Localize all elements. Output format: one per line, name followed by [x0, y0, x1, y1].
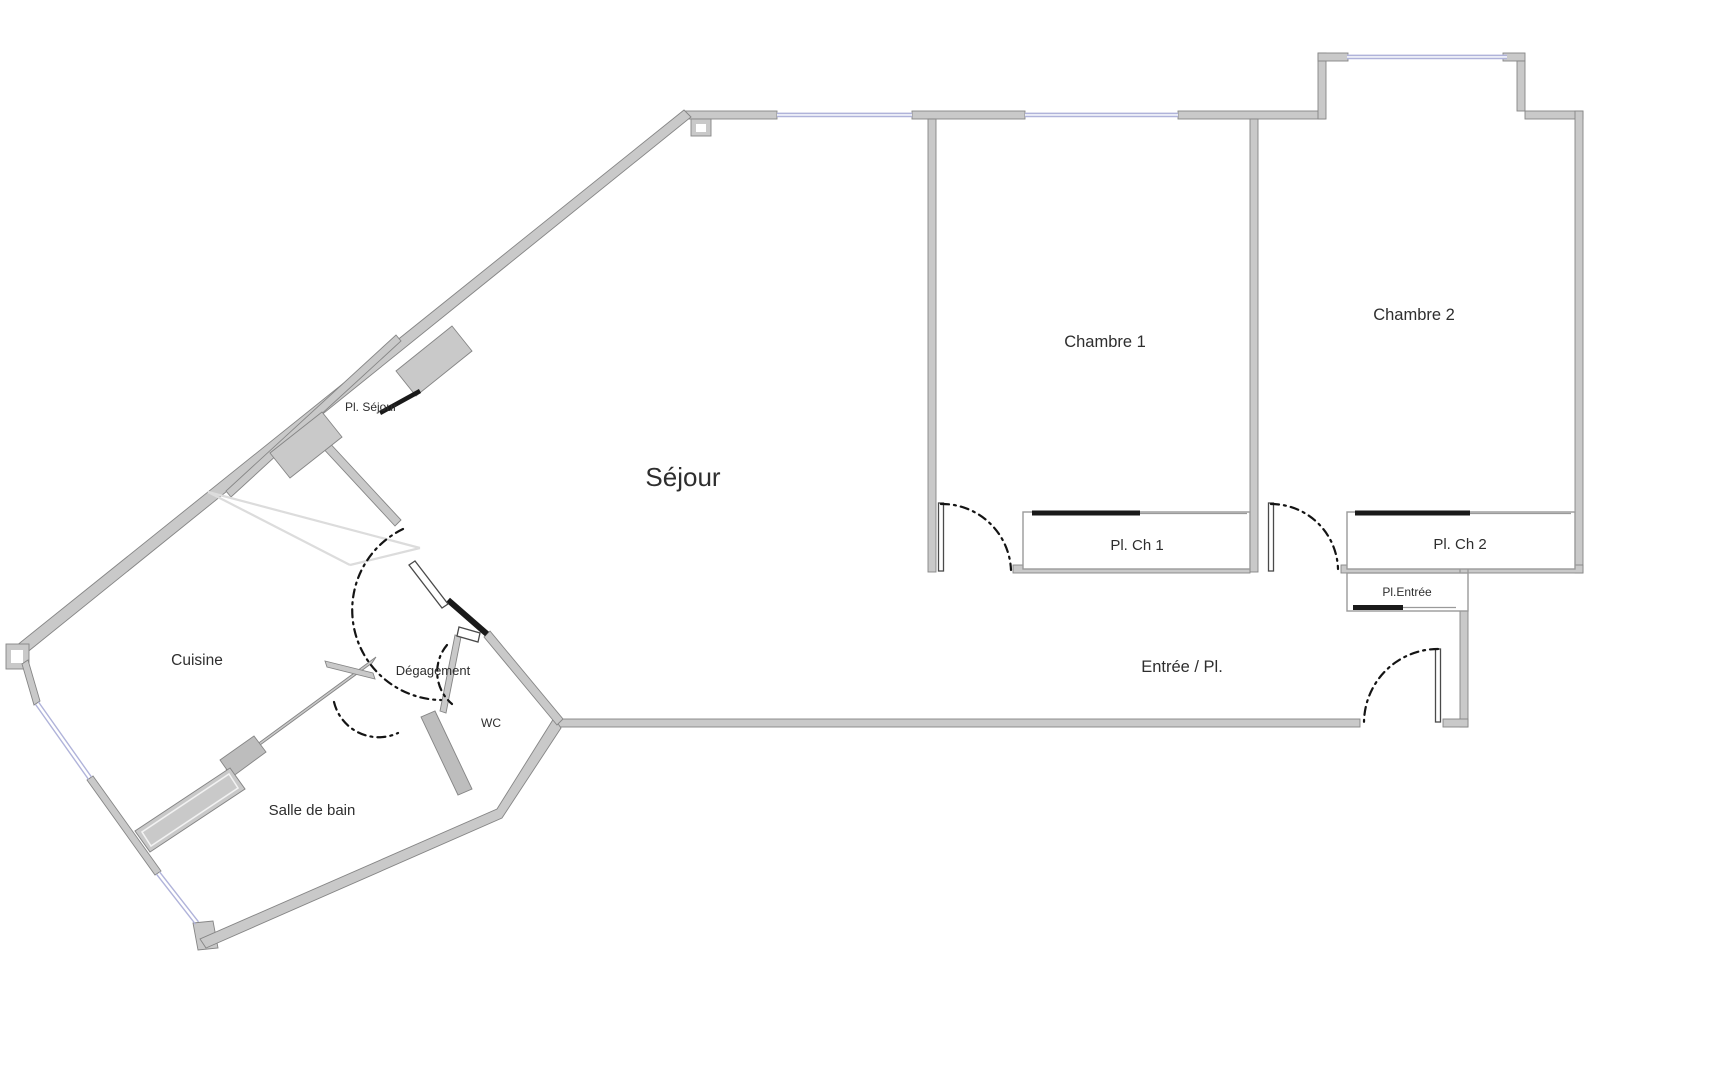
notch-core [696, 124, 706, 132]
wall-right-outer [1575, 111, 1583, 573]
window-cuisine-line [36, 704, 89, 779]
wall-block-sdb-wc [421, 711, 472, 795]
room-label-wc: WC [481, 716, 501, 730]
hatch-line [350, 548, 420, 565]
window-sdb-line [160, 872, 199, 922]
wall-bottom-right-piece [1443, 719, 1468, 727]
door-arc-sdb [334, 702, 398, 737]
wall-sejour-chambre1 [928, 119, 936, 572]
room-label-chambre1: Chambre 1 [1064, 333, 1146, 351]
bathtub [135, 768, 245, 852]
door-arc-chambre1 [941, 504, 1011, 570]
room-label-chambre2: Chambre 2 [1373, 306, 1455, 324]
wall-top-right [1525, 111, 1583, 119]
floor-plan-page: Séjour Chambre 1 Chambre 2 Pl. Ch 1 Pl. … [0, 0, 1712, 1080]
wall-sw-piece1 [22, 660, 40, 705]
hatch-line [208, 492, 420, 548]
wall-bump-left [1318, 53, 1326, 119]
hatch-line [208, 492, 350, 565]
room-label-sejour: Séjour [645, 462, 720, 492]
room-label-cuisine: Cuisine [171, 652, 223, 669]
wall-top-ch1-right [1178, 111, 1325, 119]
fixtures [135, 768, 245, 852]
window-fills [777, 55, 1507, 117]
door-arc-chambre2 [1271, 504, 1338, 569]
floor-plan: Séjour Chambre 1 Chambre 2 Pl. Ch 1 Pl. … [0, 0, 1712, 1080]
room-label-entree: Entrée / Pl. [1141, 658, 1223, 676]
closet-pl-ch1-front [1032, 511, 1140, 516]
closet-pl-ch2-front [1355, 511, 1470, 516]
door-leaf-degagement [409, 561, 448, 608]
wall-closet-sejour [226, 335, 401, 497]
door-leaf-chambre2 [1269, 503, 1274, 571]
pillar-core [11, 650, 23, 663]
wall-corridor-bottom [553, 719, 1360, 727]
closets [1023, 511, 1575, 612]
doors [334, 391, 1441, 737]
wall-boundary-lower [484, 631, 563, 725]
room-label-pl-ch1: Pl. Ch 1 [1110, 537, 1163, 554]
hatch-lines [208, 492, 420, 565]
wall-bump-right [1517, 61, 1525, 111]
room-label-pl-ch2: Pl. Ch 2 [1433, 536, 1486, 553]
room-label-degagement: Dégagement [396, 663, 471, 678]
room-labels: Séjour Chambre 1 Chambre 2 Pl. Ch 1 Pl. … [171, 306, 1487, 819]
room-label-pl-entree: Pl.Entrée [1382, 585, 1432, 599]
room-label-pl-sejour: Pl. Séjour [345, 400, 397, 414]
window-sdb-line [157, 874, 196, 924]
wall-chambre1-chambre2 [1250, 119, 1258, 572]
room-label-salle-de-bain: Salle de bain [269, 802, 356, 819]
closet-pl-entree-front [1353, 605, 1403, 610]
door-leaf-entree [1436, 649, 1441, 722]
wall-cores [11, 124, 706, 663]
window-cuisine-line [39, 702, 92, 777]
wall-top-sejour-left [685, 111, 777, 119]
door-arc-entree [1364, 649, 1438, 723]
wall-top-between-windows [912, 111, 1025, 119]
wall-bump-top-left [1318, 53, 1348, 61]
door-leaf-chambre1 [939, 503, 944, 571]
windows [36, 55, 1508, 924]
